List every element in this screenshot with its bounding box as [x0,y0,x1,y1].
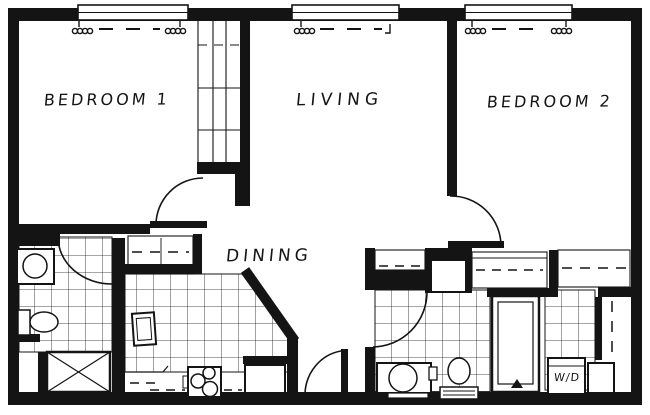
wall-closet-bottom [197,162,250,174]
bathtub-fixture [492,296,539,392]
wall-living-bedroom2 [447,20,457,196]
door-bedroom1 [150,178,207,228]
wall-refrigerator-top [243,356,288,364]
curtain-coil-icon [294,21,314,34]
floor-plan: BEDROOM 1 LIVING BEDROOM 2 DINING W/D [0,0,650,415]
wall-bathroom1-north [16,234,60,246]
wall-bathroom2-north [370,270,432,290]
exterior-wall-left [8,8,19,405]
curtain-coil-icon [465,21,571,34]
room-label-living: LIVING [295,90,384,111]
wall-bedroom1-south [16,224,150,234]
plumbing-chase-inner [432,261,465,291]
linen-closet [472,252,547,288]
door-leaf [448,241,504,248]
door-bedroom2 [448,196,504,248]
sink-icon [448,358,470,384]
oven-fixture [132,312,156,345]
wall-laundry-closet [595,297,602,360]
room-label-washer-dryer: W/D [550,371,583,384]
toilet-bowl-icon [30,312,58,332]
room-label-bedroom1: BEDROOM 1 [43,89,171,109]
wall-bathroom1-kitchen [112,238,125,392]
door-swing-arc [156,178,203,225]
window-bedroom1 [78,5,188,20]
curtain-coil-icon [72,21,185,34]
wall-kitchen-southeast [287,338,298,394]
stove-fixture [183,367,221,397]
door-entry [305,349,348,396]
bedroom2-closet [558,250,630,287]
curtain-rods [72,21,571,34]
door-leaf [341,349,348,396]
laundry-cabinet [588,363,614,393]
toilet-bowl-icon [389,364,417,392]
window-bedroom2 [465,5,572,20]
wall-bathroom2-west-lower [365,347,375,394]
wall-living-stub [235,174,250,206]
vanity-sink-fixture [17,249,54,284]
exterior-wall-right [631,8,642,405]
wardrobe-closet-bedroom1 [198,21,240,162]
wall-shower-west [38,352,47,392]
exterior-wall-bottom [8,392,642,405]
refrigerator-fixture [245,365,285,393]
door-swing-arc [305,351,341,394]
wall-kitchen-north [125,264,200,274]
window-living [292,5,399,20]
wall-bedroom2-southeast [598,287,632,297]
curtain-bracket [385,24,390,33]
door-leaf [150,221,207,228]
door-swing-arc [450,196,501,246]
room-label-dining: DINING [225,246,313,267]
floor-plan-drawing [0,0,650,415]
sink-icon [23,254,47,278]
hall-closet [375,250,425,270]
room-label-bedroom2: BEDROOM 2 [486,91,614,111]
shower-stall [47,352,110,392]
toilet-fixture [377,363,437,398]
windows [78,5,572,20]
wall-bedroom1-living [240,20,250,174]
wall-closet-divider [549,250,558,292]
